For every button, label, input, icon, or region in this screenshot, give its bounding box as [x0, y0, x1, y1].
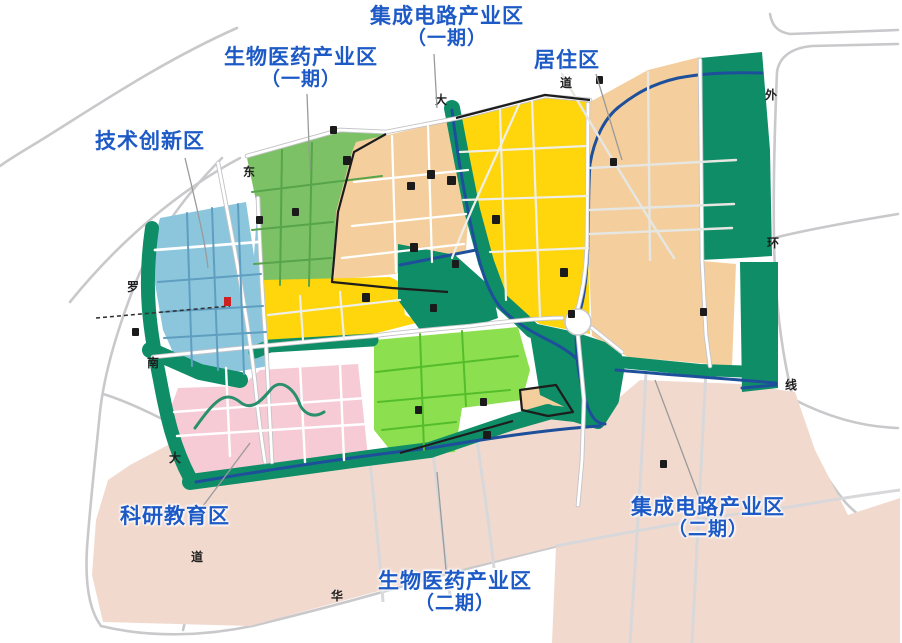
callout-bio-phase1-line1: 生物医药产业区	[224, 47, 378, 68]
callout-ic-phase2-line2: （二期）	[631, 519, 785, 540]
road-label: 罗	[127, 279, 139, 294]
callout-ic-phase1-line2: （一期）	[370, 28, 524, 49]
callout-ic-phase2: 集成电路产业区 （二期）	[631, 497, 785, 540]
callout-ic-phase2-line1: 集成电路产业区	[631, 497, 785, 518]
park-map-canvas: 东 大 道 外 环 线 罗 南 大 道 华	[0, 0, 902, 643]
road-label: 道	[560, 75, 572, 90]
road-label: 道	[191, 549, 203, 564]
callout-tech-innovation-line1: 技术创新区	[95, 131, 205, 152]
callout-research-education-line1: 科研教育区	[120, 506, 230, 527]
road-label: 大	[169, 450, 181, 465]
greenbelt-right-strip-lower	[740, 262, 778, 392]
callout-bio-phase1-line2: （一期）	[224, 69, 378, 90]
planning-map: 东 大 道 外 环 线 罗 南 大 道 华 集成电路产业区 （一期） 生物医药产…	[0, 0, 902, 643]
callout-bio-phase2-line2: （二期）	[378, 593, 532, 614]
road-label: 华	[331, 588, 343, 603]
road-label: 外	[765, 87, 777, 102]
callout-bio-phase2: 生物医药产业区 （二期）	[378, 571, 532, 614]
callout-bio-phase1: 生物医药产业区 （一期）	[224, 47, 378, 90]
callout-ic-phase1-line1: 集成电路产业区	[370, 6, 524, 27]
callout-tech-innovation: 技术创新区	[95, 131, 205, 152]
callout-residential-line1: 居住区	[534, 50, 600, 71]
road-label: 环	[767, 236, 779, 250]
road-label: 东	[243, 164, 255, 179]
callout-research-education: 科研教育区	[120, 506, 230, 527]
callout-bio-phase2-line1: 生物医药产业区	[378, 571, 532, 592]
station-marker	[224, 297, 231, 306]
callout-ic-phase1: 集成电路产业区 （一期）	[370, 6, 524, 49]
road-label: 线	[785, 377, 797, 392]
callout-residential: 居住区	[534, 50, 600, 71]
road-label: 南	[147, 355, 159, 370]
